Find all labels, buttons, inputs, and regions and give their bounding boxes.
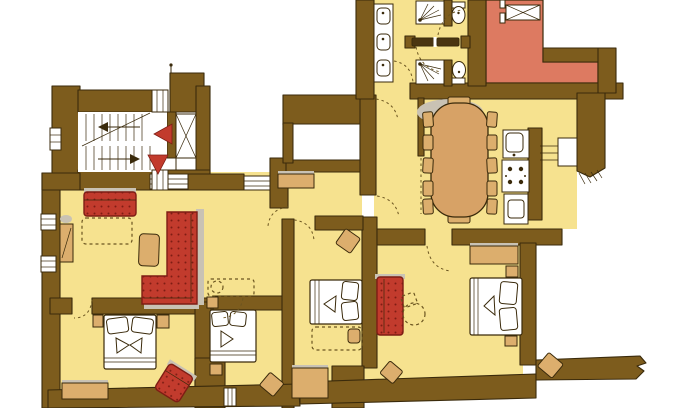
cabinet-shadow [60,215,72,223]
wall-shower-toilet-upper [444,0,452,26]
dresser [292,368,328,398]
nightstand [207,297,218,308]
wall-bedroom-d-top-right [452,229,562,245]
pillow [341,301,359,321]
optional-bed-pillow [348,329,360,343]
dining-room [417,97,497,223]
toilet-lower [452,62,466,85]
stair-door-bottom [152,170,168,190]
nightstand [93,315,103,327]
floor-plan-canvas [0,0,680,408]
pillow [211,311,228,327]
desk [470,246,518,264]
shower-upper [416,1,444,24]
lightwell-shaft [293,124,360,160]
bathroom-doors [412,37,459,47]
pillow [131,317,154,335]
pillow [106,317,129,335]
nightstand [505,336,517,346]
wall-utility-arm-top [543,48,603,62]
window-left-2 [41,256,56,272]
utility-slit-2 [500,13,505,23]
dining-chairs-right [486,112,497,215]
hall-sideboard [278,174,314,188]
pillow [499,281,518,304]
wall-bedrooms-top-c [213,296,283,310]
stove [502,160,529,192]
wall-corridor-left-upper [360,95,376,195]
wall-bedrooms-top-a [50,298,72,314]
dining-chairs-left [423,112,434,215]
window-living-top [244,176,270,190]
window-stairwell [50,128,61,150]
window-left-1 [41,214,56,230]
wall-bath-door-stub-right [461,36,470,48]
wall-bedroom-d-top-left [377,229,425,245]
wall-exterior-left [42,173,60,408]
pillow [229,311,246,327]
utility-slit-1 [500,0,505,8]
wall-bedroom-c-top [315,216,363,230]
nightstand [506,266,518,277]
kitchen-sink-unit [503,130,529,158]
bench [62,383,108,399]
coffee-table [138,234,159,267]
utility-room-floor [486,0,598,83]
kitchen-base-unit [504,194,528,224]
wall-shower-toilet-lower [444,60,452,86]
window-bottom [224,388,236,406]
stair-door-top [152,90,168,112]
elevator-door [176,158,196,170]
floor-plan-drawing [0,0,680,408]
washbasins [377,8,390,76]
nightstand [157,315,169,328]
antenna-dot [169,63,172,66]
wall-bathroom-left [356,0,374,99]
wall-corridor-left-lower [362,217,377,368]
wall-stairwell-top [78,90,154,112]
wall-bathroom-right [468,0,486,86]
pillow [499,307,518,330]
pillow [341,281,359,301]
wall-kitchen-right [577,93,605,177]
wall-kitchen-counter-back [528,128,542,220]
wall-exterior-corner [42,173,80,190]
nightstand [210,364,222,375]
wall-living-top [188,174,244,190]
wall-utility-right [598,48,616,93]
wall-stairwell-bottom-left [78,170,152,190]
dining-table [431,103,488,217]
wall-lightwell-west [283,123,293,163]
shower-lower [416,60,444,84]
